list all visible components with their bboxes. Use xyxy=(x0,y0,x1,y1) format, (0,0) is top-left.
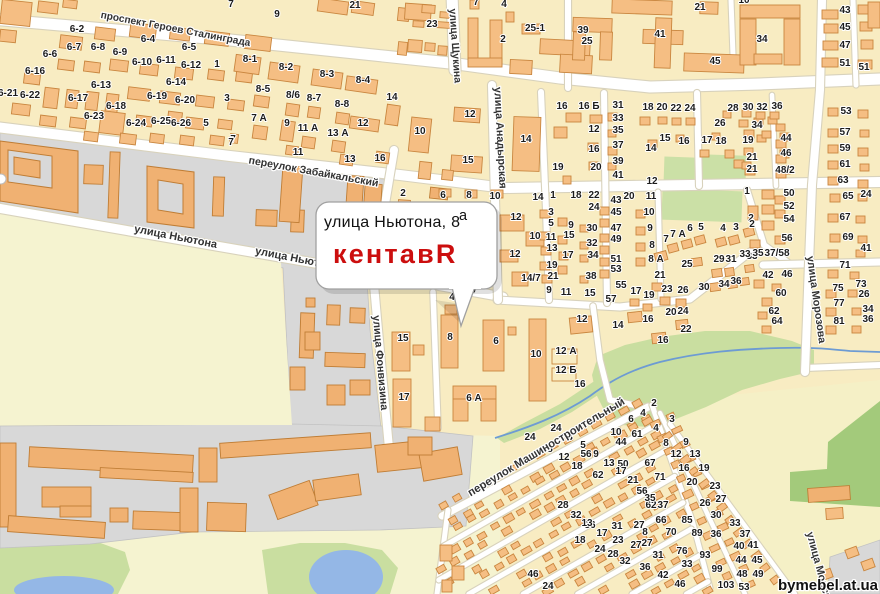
svg-text:8: 8 xyxy=(466,190,472,201)
svg-text:34: 34 xyxy=(587,250,599,261)
svg-text:20: 20 xyxy=(623,191,635,202)
svg-text:bymebel.at.ua: bymebel.at.ua xyxy=(778,577,879,594)
svg-text:39: 39 xyxy=(577,25,589,36)
svg-text:55: 55 xyxy=(615,280,627,291)
svg-text:8-8: 8-8 xyxy=(335,99,350,110)
svg-text:31: 31 xyxy=(612,100,624,111)
svg-text:12: 12 xyxy=(670,449,682,460)
svg-text:8: 8 xyxy=(447,332,453,343)
svg-text:49: 49 xyxy=(610,234,622,245)
svg-text:11: 11 xyxy=(561,287,572,298)
svg-text:38: 38 xyxy=(585,271,597,282)
svg-text:44: 44 xyxy=(615,437,627,448)
svg-text:3: 3 xyxy=(548,207,554,218)
svg-text:10: 10 xyxy=(529,231,541,242)
svg-text:48: 48 xyxy=(736,569,748,580)
svg-text:15: 15 xyxy=(659,133,671,144)
svg-text:46: 46 xyxy=(674,579,686,590)
svg-text:41: 41 xyxy=(654,29,666,40)
svg-text:54: 54 xyxy=(783,214,795,225)
svg-text:93: 93 xyxy=(699,550,711,561)
svg-text:42: 42 xyxy=(762,270,774,281)
svg-text:8-1: 8-1 xyxy=(243,54,258,65)
svg-text:22: 22 xyxy=(680,324,692,335)
svg-text:9: 9 xyxy=(593,449,599,460)
svg-text:8 А: 8 А xyxy=(648,254,664,265)
svg-text:8: 8 xyxy=(663,438,669,449)
svg-text:16: 16 xyxy=(588,144,600,155)
svg-text:27: 27 xyxy=(641,538,653,549)
svg-text:33: 33 xyxy=(739,249,751,260)
svg-text:6-11: 6-11 xyxy=(156,55,176,66)
svg-text:51: 51 xyxy=(839,58,851,69)
svg-text:15: 15 xyxy=(563,230,575,241)
svg-text:28: 28 xyxy=(557,500,569,511)
svg-text:17: 17 xyxy=(701,135,713,146)
svg-text:89: 89 xyxy=(691,528,703,539)
svg-text:3: 3 xyxy=(733,222,739,233)
svg-text:8-3: 8-3 xyxy=(320,69,335,80)
svg-text:44: 44 xyxy=(735,555,747,566)
svg-text:12 Б: 12 Б xyxy=(555,365,576,376)
svg-text:17: 17 xyxy=(615,466,627,477)
svg-text:8-7: 8-7 xyxy=(307,93,322,104)
svg-text:37: 37 xyxy=(657,500,669,511)
svg-text:30: 30 xyxy=(710,510,722,521)
svg-text:16: 16 xyxy=(574,379,586,390)
svg-text:37/58: 37/58 xyxy=(764,248,789,259)
svg-text:21: 21 xyxy=(654,270,666,281)
svg-text:64: 64 xyxy=(771,316,783,327)
svg-text:45: 45 xyxy=(839,22,851,33)
svg-text:10: 10 xyxy=(738,0,750,6)
svg-text:42: 42 xyxy=(657,570,669,581)
svg-text:3: 3 xyxy=(224,93,230,104)
svg-text:8-5: 8-5 xyxy=(256,84,271,95)
svg-text:20: 20 xyxy=(665,307,677,318)
svg-text:4: 4 xyxy=(640,408,646,419)
svg-text:21: 21 xyxy=(694,2,706,13)
svg-text:18: 18 xyxy=(570,190,582,201)
svg-text:10: 10 xyxy=(643,207,655,218)
svg-text:40: 40 xyxy=(733,541,745,552)
svg-text:22: 22 xyxy=(588,190,600,201)
svg-text:49: 49 xyxy=(752,569,764,580)
svg-text:30: 30 xyxy=(742,102,754,113)
svg-text:5: 5 xyxy=(548,218,554,229)
svg-text:6-18: 6-18 xyxy=(106,101,126,112)
svg-text:12: 12 xyxy=(558,452,570,463)
svg-text:19: 19 xyxy=(742,135,754,146)
svg-text:6-21: 6-21 xyxy=(0,88,18,99)
svg-text:16: 16 xyxy=(678,463,690,474)
svg-text:21: 21 xyxy=(746,152,758,163)
svg-text:33: 33 xyxy=(681,559,693,570)
svg-text:46: 46 xyxy=(527,569,539,580)
svg-text:14: 14 xyxy=(386,92,398,103)
svg-text:14: 14 xyxy=(520,134,532,145)
svg-text:69: 69 xyxy=(842,232,854,243)
svg-text:36: 36 xyxy=(862,314,874,325)
svg-text:13: 13 xyxy=(603,458,615,469)
svg-text:65: 65 xyxy=(842,191,854,202)
svg-text:6-19: 6-19 xyxy=(147,91,167,102)
svg-text:46: 46 xyxy=(781,269,793,280)
svg-text:13: 13 xyxy=(689,449,701,460)
svg-text:32: 32 xyxy=(619,556,631,567)
svg-text:6-20: 6-20 xyxy=(175,95,195,106)
svg-text:31: 31 xyxy=(611,521,623,532)
svg-text:6-8: 6-8 xyxy=(91,42,106,53)
svg-text:24: 24 xyxy=(542,581,554,592)
svg-text:39: 39 xyxy=(612,156,624,167)
svg-text:45: 45 xyxy=(751,555,763,566)
svg-text:26: 26 xyxy=(714,118,726,129)
svg-text:47: 47 xyxy=(839,40,851,51)
svg-text:6-26: 6-26 xyxy=(171,118,191,129)
svg-text:76: 76 xyxy=(676,546,688,557)
svg-text:24: 24 xyxy=(588,202,600,213)
svg-text:43: 43 xyxy=(610,195,622,206)
svg-text:35: 35 xyxy=(612,125,624,136)
svg-text:7 А: 7 А xyxy=(251,113,267,124)
svg-text:16: 16 xyxy=(642,314,654,325)
svg-text:8-2: 8-2 xyxy=(279,62,294,73)
svg-text:44: 44 xyxy=(780,133,792,144)
svg-text:6-23: 6-23 xyxy=(84,111,104,122)
svg-text:85: 85 xyxy=(681,515,693,526)
svg-text:19: 19 xyxy=(552,162,564,173)
svg-text:36: 36 xyxy=(771,101,783,112)
svg-text:36: 36 xyxy=(639,562,651,573)
svg-text:26: 26 xyxy=(699,498,711,509)
svg-text:99: 99 xyxy=(711,564,723,575)
svg-text:32: 32 xyxy=(586,238,598,249)
svg-text:6-17: 6-17 xyxy=(68,93,88,104)
svg-text:6-14: 6-14 xyxy=(166,77,186,88)
svg-text:70: 70 xyxy=(665,527,677,538)
svg-text:32: 32 xyxy=(570,510,582,521)
svg-text:улица Ньютона, 8: улица Ньютона, 8 xyxy=(324,214,460,231)
svg-text:15: 15 xyxy=(462,155,474,166)
svg-text:36: 36 xyxy=(730,276,742,287)
svg-text:12: 12 xyxy=(576,314,588,325)
svg-text:34: 34 xyxy=(756,34,768,45)
svg-text:11: 11 xyxy=(646,191,657,202)
svg-text:12: 12 xyxy=(646,176,658,187)
svg-text:18: 18 xyxy=(715,136,727,147)
svg-text:24: 24 xyxy=(684,103,696,114)
svg-text:7: 7 xyxy=(473,0,479,8)
svg-text:17: 17 xyxy=(596,528,608,539)
svg-text:6-12: 6-12 xyxy=(181,60,201,71)
svg-text:16 Б: 16 Б xyxy=(578,101,599,112)
svg-text:57: 57 xyxy=(605,294,617,305)
svg-text:8/6: 8/6 xyxy=(286,90,300,101)
svg-text:57: 57 xyxy=(839,127,851,138)
svg-text:14/7: 14/7 xyxy=(521,273,541,284)
svg-text:33: 33 xyxy=(729,518,741,529)
svg-text:6-13: 6-13 xyxy=(91,80,111,91)
svg-text:11: 11 xyxy=(293,147,304,158)
svg-text:53: 53 xyxy=(610,264,622,275)
svg-text:12: 12 xyxy=(357,118,369,129)
svg-text:2: 2 xyxy=(749,219,755,230)
svg-text:103: 103 xyxy=(718,580,735,591)
svg-text:1: 1 xyxy=(214,59,220,70)
svg-text:81: 81 xyxy=(833,316,845,327)
svg-text:6: 6 xyxy=(628,414,634,425)
svg-text:6-4: 6-4 xyxy=(141,34,156,45)
svg-text:34: 34 xyxy=(751,120,763,131)
svg-text:16: 16 xyxy=(657,335,669,346)
svg-text:6: 6 xyxy=(493,336,499,347)
svg-text:33: 33 xyxy=(612,113,624,124)
svg-text:37: 37 xyxy=(739,529,751,540)
svg-text:18: 18 xyxy=(574,535,586,546)
svg-text:6-25: 6-25 xyxy=(151,116,171,127)
svg-text:5: 5 xyxy=(203,118,209,129)
svg-text:30: 30 xyxy=(586,223,598,234)
svg-text:41: 41 xyxy=(747,540,759,551)
svg-text:4: 4 xyxy=(653,423,659,434)
svg-text:16: 16 xyxy=(556,101,568,112)
svg-text:31: 31 xyxy=(652,550,664,561)
svg-text:7: 7 xyxy=(663,234,669,245)
svg-text:24: 24 xyxy=(594,544,606,555)
svg-text:41: 41 xyxy=(612,170,624,181)
svg-text:35: 35 xyxy=(752,248,764,259)
svg-text:21: 21 xyxy=(349,0,361,11)
svg-text:77: 77 xyxy=(833,298,845,309)
svg-text:41: 41 xyxy=(860,243,872,254)
svg-text:8: 8 xyxy=(649,240,655,251)
svg-text:5: 5 xyxy=(580,440,586,451)
svg-text:43: 43 xyxy=(839,5,851,16)
svg-text:6: 6 xyxy=(440,190,446,201)
svg-text:36: 36 xyxy=(710,529,722,540)
svg-text:61: 61 xyxy=(631,429,643,440)
svg-text:15: 15 xyxy=(584,288,596,299)
svg-text:19: 19 xyxy=(643,290,655,301)
svg-text:24: 24 xyxy=(860,189,872,200)
svg-text:1: 1 xyxy=(550,190,556,201)
svg-text:45: 45 xyxy=(610,207,622,218)
svg-text:3: 3 xyxy=(669,414,675,425)
svg-text:8-4: 8-4 xyxy=(356,75,371,86)
svg-text:62: 62 xyxy=(592,470,604,481)
svg-text:8: 8 xyxy=(642,527,648,538)
svg-text:9: 9 xyxy=(683,437,689,448)
svg-text:30: 30 xyxy=(698,282,710,293)
svg-text:6-10: 6-10 xyxy=(132,57,152,68)
svg-text:20: 20 xyxy=(590,162,602,173)
svg-text:6-6: 6-6 xyxy=(43,49,58,60)
svg-text:17: 17 xyxy=(398,392,410,403)
svg-text:4: 4 xyxy=(501,0,507,10)
svg-text:16: 16 xyxy=(374,153,386,164)
svg-text:15: 15 xyxy=(397,333,409,344)
svg-text:13: 13 xyxy=(546,243,558,254)
svg-text:9: 9 xyxy=(546,285,552,296)
svg-text:21: 21 xyxy=(746,164,758,175)
svg-text:67: 67 xyxy=(839,212,851,223)
svg-text:66: 66 xyxy=(655,515,667,526)
svg-text:23: 23 xyxy=(661,284,673,295)
svg-text:9: 9 xyxy=(284,118,290,129)
svg-text:16: 16 xyxy=(678,136,690,147)
svg-text:26: 26 xyxy=(677,285,689,296)
svg-text:6-16: 6-16 xyxy=(25,66,45,77)
svg-text:71: 71 xyxy=(839,260,851,271)
svg-text:51: 51 xyxy=(858,62,870,73)
svg-text:24: 24 xyxy=(524,432,536,443)
svg-text:35: 35 xyxy=(644,493,656,504)
svg-text:10: 10 xyxy=(414,126,426,137)
svg-text:кентавR: кентавR xyxy=(333,239,458,269)
svg-text:13: 13 xyxy=(344,154,356,165)
svg-text:37: 37 xyxy=(612,140,624,151)
svg-text:6-24: 6-24 xyxy=(126,118,146,129)
svg-text:28: 28 xyxy=(727,103,739,114)
svg-text:34: 34 xyxy=(718,279,730,290)
svg-text:28: 28 xyxy=(607,549,619,560)
svg-text:59: 59 xyxy=(839,143,851,154)
svg-text:27: 27 xyxy=(630,540,642,551)
svg-text:19: 19 xyxy=(546,260,558,271)
svg-text:20: 20 xyxy=(686,477,698,488)
svg-text:6 А: 6 А xyxy=(466,393,482,404)
svg-text:6-7: 6-7 xyxy=(67,42,82,53)
svg-text:32: 32 xyxy=(756,102,768,113)
svg-text:5: 5 xyxy=(698,222,704,233)
svg-text:4: 4 xyxy=(720,223,726,234)
svg-text:25: 25 xyxy=(681,259,693,270)
svg-text:27: 27 xyxy=(715,494,727,505)
svg-text:12: 12 xyxy=(509,249,521,260)
svg-text:20: 20 xyxy=(656,102,668,113)
svg-text:а: а xyxy=(459,208,468,224)
svg-text:10: 10 xyxy=(530,349,542,360)
svg-text:24: 24 xyxy=(677,306,689,317)
svg-text:21: 21 xyxy=(627,475,639,486)
svg-text:6: 6 xyxy=(687,223,693,234)
svg-text:53: 53 xyxy=(840,106,852,117)
svg-text:2: 2 xyxy=(400,188,406,199)
svg-text:56: 56 xyxy=(781,233,793,244)
svg-text:6-2: 6-2 xyxy=(70,24,85,35)
svg-text:23: 23 xyxy=(426,19,438,30)
svg-text:12: 12 xyxy=(510,212,522,223)
svg-text:9: 9 xyxy=(274,9,280,20)
svg-text:22: 22 xyxy=(670,103,682,114)
svg-text:2: 2 xyxy=(500,34,506,45)
svg-text:7: 7 xyxy=(228,0,234,10)
svg-text:26: 26 xyxy=(858,289,870,300)
svg-text:31: 31 xyxy=(725,254,737,265)
svg-text:12: 12 xyxy=(588,124,600,135)
svg-text:6-22: 6-22 xyxy=(20,90,40,101)
svg-text:71: 71 xyxy=(654,472,666,483)
svg-text:60: 60 xyxy=(775,288,787,299)
svg-text:13: 13 xyxy=(581,518,593,529)
svg-text:7: 7 xyxy=(228,137,234,148)
svg-text:6-5: 6-5 xyxy=(182,42,197,53)
svg-text:21: 21 xyxy=(547,271,559,282)
svg-text:12: 12 xyxy=(464,109,476,120)
svg-text:67: 67 xyxy=(644,458,656,469)
svg-text:14: 14 xyxy=(532,192,544,203)
svg-text:23: 23 xyxy=(709,481,721,492)
svg-text:63: 63 xyxy=(837,175,849,186)
svg-text:25: 25 xyxy=(581,36,593,47)
svg-text:75: 75 xyxy=(832,283,844,294)
svg-text:9: 9 xyxy=(647,223,653,234)
svg-text:18: 18 xyxy=(571,461,583,472)
svg-text:12 А: 12 А xyxy=(555,346,576,357)
svg-text:17: 17 xyxy=(630,286,642,297)
svg-text:23: 23 xyxy=(612,535,624,546)
svg-text:47: 47 xyxy=(610,223,622,234)
svg-text:10: 10 xyxy=(489,191,501,202)
svg-text:2: 2 xyxy=(651,398,657,409)
svg-text:14: 14 xyxy=(645,143,657,154)
svg-text:7 А: 7 А xyxy=(670,229,686,240)
svg-text:6-9: 6-9 xyxy=(113,47,128,58)
svg-text:46: 46 xyxy=(780,148,792,159)
svg-text:25-1: 25-1 xyxy=(525,23,545,34)
svg-text:11: 11 xyxy=(546,232,557,243)
svg-text:53: 53 xyxy=(738,582,750,593)
svg-text:1: 1 xyxy=(744,186,750,197)
svg-text:29: 29 xyxy=(713,254,725,265)
svg-text:17: 17 xyxy=(562,250,574,261)
svg-text:19: 19 xyxy=(698,463,710,474)
svg-text:45: 45 xyxy=(709,56,721,67)
svg-text:52: 52 xyxy=(783,201,795,212)
svg-text:61: 61 xyxy=(839,159,851,170)
svg-text:48/2: 48/2 xyxy=(775,165,795,176)
svg-text:14: 14 xyxy=(612,320,624,331)
svg-text:50: 50 xyxy=(783,188,795,199)
svg-text:11 А: 11 А xyxy=(298,123,319,134)
svg-text:18: 18 xyxy=(642,102,654,113)
svg-text:13 А: 13 А xyxy=(327,128,348,139)
